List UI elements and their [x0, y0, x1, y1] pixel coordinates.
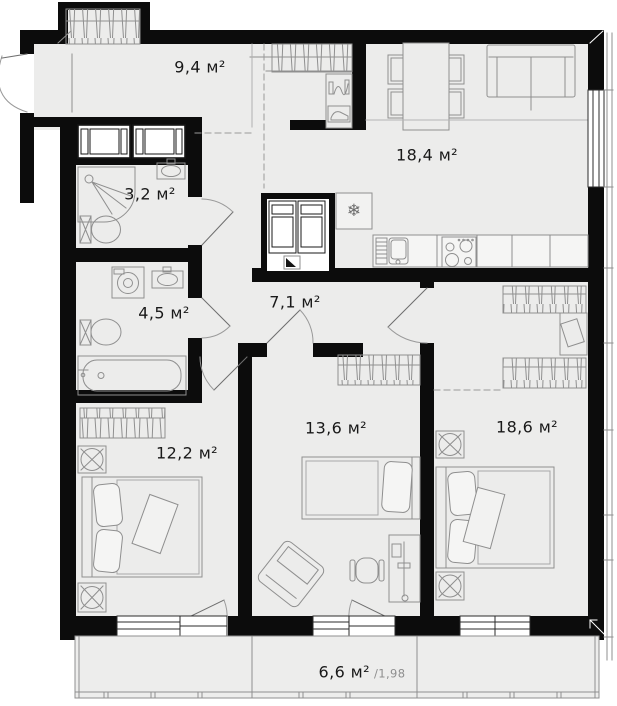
wardrobe-niche — [66, 9, 140, 44]
dining-set — [388, 43, 464, 130]
wardrobe-bedroom-left — [80, 408, 165, 438]
sink-small — [157, 159, 185, 179]
balcony-area-label: 6,6 м² — [319, 663, 370, 682]
kitchen-counter — [373, 235, 588, 267]
desk — [389, 535, 420, 602]
pantry-doors — [269, 201, 325, 269]
single-bed — [302, 457, 420, 519]
bedroom-mid-door — [267, 310, 313, 343]
entrance-door — [0, 54, 27, 112]
double-bed-left — [82, 477, 202, 577]
double-bed-right — [436, 467, 554, 568]
window-bedroom-right — [460, 616, 530, 636]
room-label-living-kitchen: 18,4 м² — [396, 146, 458, 165]
armchair — [256, 539, 326, 609]
window-living-right — [588, 90, 604, 187]
room-label-bedroom-left: 12,2 м² — [156, 444, 218, 463]
balcony-coefficient-label: /1,98 — [374, 667, 405, 681]
room-label-bedroom-right: 18,6 м² — [496, 418, 558, 437]
facade-lines — [604, 33, 613, 660]
nightstand-icon — [436, 431, 464, 458]
wardrobe-hallway — [250, 44, 352, 72]
snowflake-icon: ❄ — [336, 193, 372, 229]
room-label-hallway: 9,4 м² — [174, 58, 225, 77]
floor-plan: 9,4 м² 18,4 м² 3,2 м² 4,5 м² 7,1 м² 12,2… — [0, 0, 617, 706]
room-label-bathroom: 4,5 м² — [138, 304, 189, 323]
desk-chair — [350, 558, 384, 583]
wardrobe-bedroom-right-mid — [503, 358, 586, 388]
window-bedroom-mid — [313, 616, 349, 636]
plan-linework — [0, 0, 617, 706]
wardrobe-bedroom-mid — [338, 355, 420, 385]
nightstand-icon — [436, 572, 464, 600]
bathroom-door — [202, 298, 230, 338]
hallway-utility-box — [326, 74, 352, 128]
sink-bathroom — [152, 267, 183, 288]
nightstand-icon — [78, 446, 106, 473]
door-swings — [0, 54, 427, 620]
nightstand-icon — [78, 583, 106, 612]
balcony-label: 6,6 м²/1,98 — [319, 663, 406, 682]
corner-arrow — [590, 620, 604, 634]
bathtub — [78, 356, 186, 395]
wardrobe-bedroom-right-top — [503, 286, 586, 313]
washing-machine — [112, 267, 144, 298]
toilet-bottom — [80, 319, 121, 345]
balcony-door-left — [180, 616, 227, 636]
vent-shaft-boxes — [78, 125, 185, 158]
balcony-door-mid — [349, 616, 395, 636]
sofa — [487, 45, 575, 110]
shower-room-door — [202, 199, 233, 245]
room-label-corridor: 7,1 м² — [269, 293, 320, 312]
window-bedroom-left — [117, 616, 180, 636]
room-label-shower-room: 3,2 м² — [124, 185, 175, 204]
bedroom-left-door — [200, 357, 247, 390]
room-label-bedroom-middle: 13,6 м² — [305, 419, 367, 438]
side-table — [560, 313, 587, 355]
bedroom-right-door — [388, 288, 427, 343]
